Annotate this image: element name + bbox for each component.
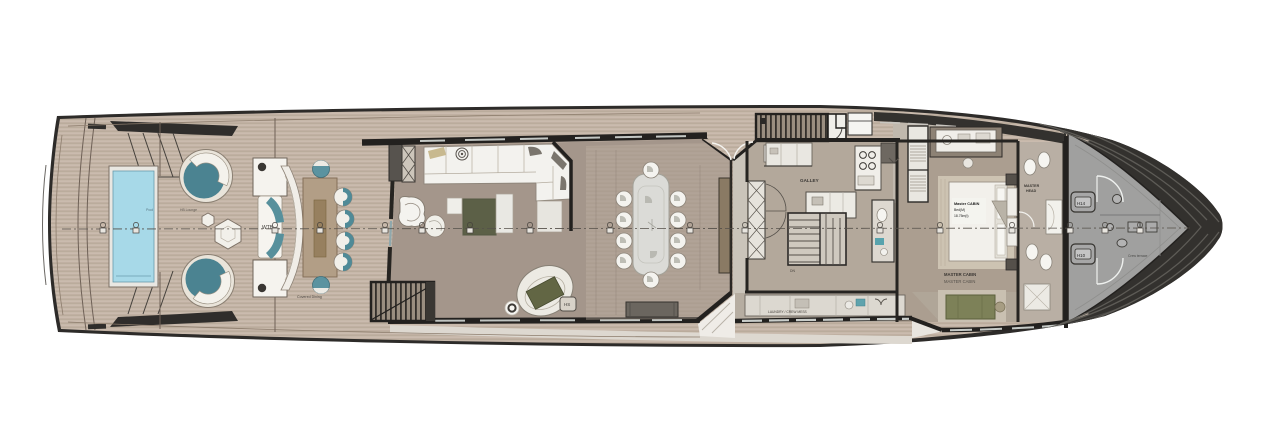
svg-text:HS: HS <box>564 302 570 307</box>
svg-text:Master CABIN: Master CABIN <box>954 202 980 206</box>
svg-text:Bed(M): Bed(M) <box>954 208 965 212</box>
svg-text:MASTER CABIN: MASTER CABIN <box>944 279 975 284</box>
svg-text:HB Lounge: HB Lounge <box>180 208 197 212</box>
svg-text:HEAD: HEAD <box>1026 189 1037 193</box>
svg-text:Covered Dining: Covered Dining <box>297 295 322 299</box>
svg-text:LAUNDRY / CREW MESS: LAUNDRY / CREW MESS <box>768 310 808 314</box>
svg-text:Crew terrace: Crew terrace <box>1128 254 1148 258</box>
svg-text:18.75m(t): 18.75m(t) <box>954 214 969 218</box>
svg-text:MASTER: MASTER <box>1024 184 1040 188</box>
svg-text:H10: H10 <box>1077 253 1086 258</box>
svg-text:GALLEY: GALLEY <box>800 178 819 183</box>
svg-text:DN: DN <box>790 269 795 273</box>
svg-text:H14: H14 <box>1077 201 1086 206</box>
svg-text:Pool: Pool <box>146 208 153 212</box>
svg-text:MASTER CABIN: MASTER CABIN <box>944 272 976 277</box>
